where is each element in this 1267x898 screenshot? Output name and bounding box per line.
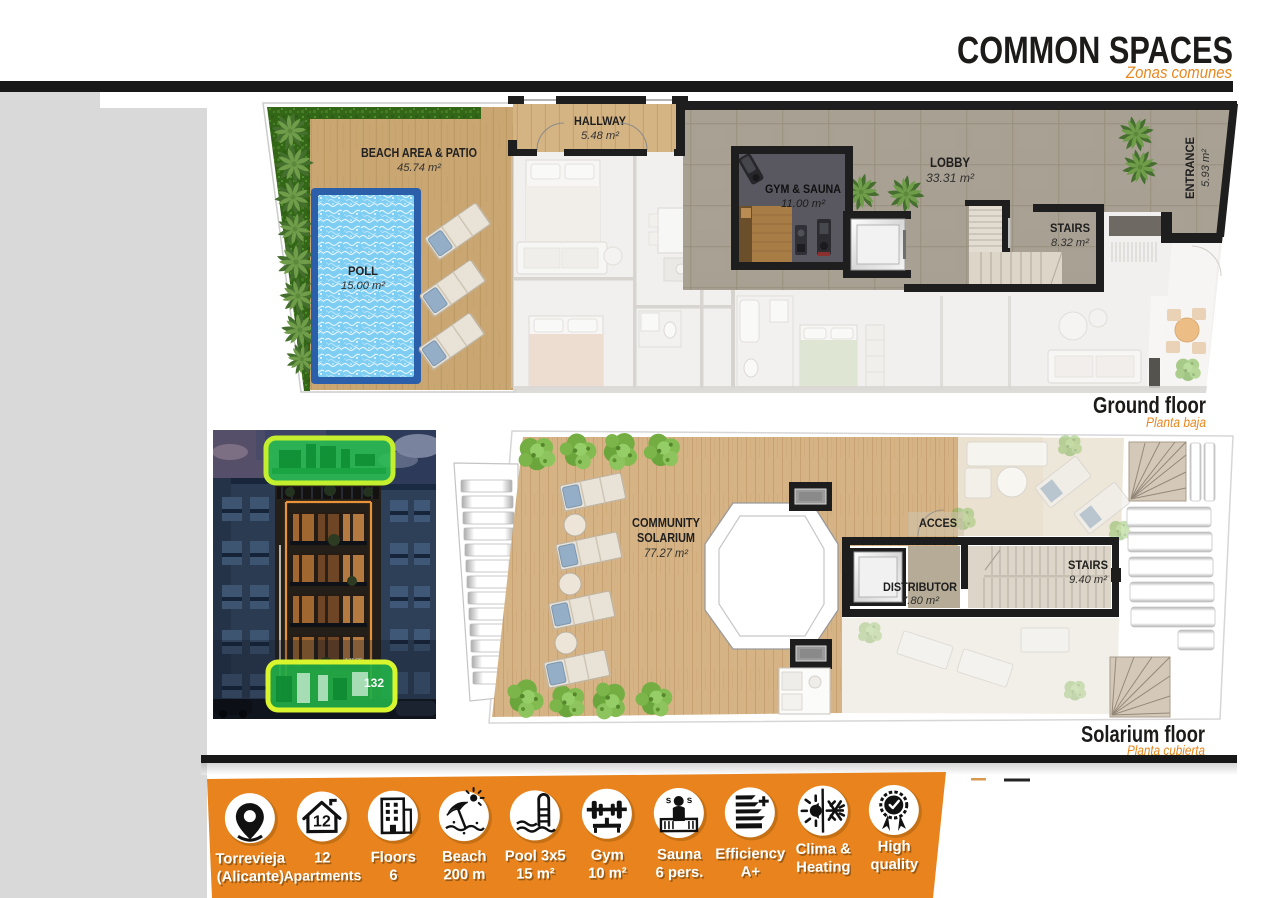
svg-text:Heating: Heating [796,859,850,876]
svg-text:Efficiency: Efficiency [715,846,786,863]
svg-text:Gym: Gym [591,848,624,864]
svg-text:ENTRANCE: ENTRANCE [1183,137,1197,199]
svg-text:Pool 3x5: Pool 3x5 [505,848,566,865]
svg-text:ACCES: ACCES [919,516,957,530]
svg-text:s: s [687,795,693,806]
svg-text:quality: quality [870,857,919,873]
svg-text:BEACH AREA & PATIO: BEACH AREA & PATIO [361,146,477,160]
svg-text:12: 12 [314,850,331,866]
svg-text:STAIRS: STAIRS [1068,558,1108,572]
svg-text:(Alicante): (Alicante) [217,869,285,886]
svg-text:6 pers.: 6 pers. [655,865,703,881]
svg-text:77.27 m²: 77.27 m² [644,548,689,560]
svg-text:Sauna: Sauna [657,847,702,863]
svg-text:5.93 m²: 5.93 m² [1200,149,1212,187]
svg-text:10 m²: 10 m² [588,866,627,882]
svg-text:Beach: Beach [442,849,487,865]
svg-text:45.74 m²: 45.74 m² [397,162,441,174]
svg-text:200 m: 200 m [443,867,485,883]
svg-text:33.31 m²: 33.31 m² [926,171,975,185]
svg-text:DISTRIBUTOR: DISTRIBUTOR [883,582,958,594]
svg-text:Zonas comunes: Zonas comunes [1125,63,1232,82]
svg-text:Apartments: Apartments [283,867,361,884]
svg-text:Floors: Floors [371,850,416,866]
svg-text:Clima &: Clima & [796,841,852,858]
svg-text:HALLWAY: HALLWAY [574,114,626,128]
svg-text:GYM & SAUNA: GYM & SAUNA [765,182,841,196]
svg-text:A+: A+ [741,864,761,880]
svg-text:132: 132 [364,676,384,690]
svg-text:POLL: POLL [348,264,378,278]
svg-text:SOLARIUM: SOLARIUM [637,531,695,545]
svg-text:STAIRS: STAIRS [1050,221,1090,235]
svg-text:15 m²: 15 m² [516,866,555,882]
svg-text:High: High [878,839,911,855]
svg-text:11.00 m²: 11.00 m² [781,198,825,210]
svg-text:15.00 m²: 15.00 m² [341,280,385,292]
svg-text:9.40 m²: 9.40 m² [1069,574,1107,586]
svg-text:COMMUNITY: COMMUNITY [632,516,701,530]
svg-text:LOBBY: LOBBY [930,155,970,170]
svg-text:7.80 m²: 7.80 m² [901,595,939,607]
svg-text:8.32 m²: 8.32 m² [1051,237,1089,249]
svg-text:Torrevieja: Torrevieja [215,851,286,868]
svg-text:12: 12 [313,813,331,830]
svg-text:Planta baja: Planta baja [1146,415,1206,430]
svg-text:5.48 m²: 5.48 m² [581,130,619,142]
svg-text:6: 6 [389,868,397,884]
svg-text:s: s [666,795,672,806]
